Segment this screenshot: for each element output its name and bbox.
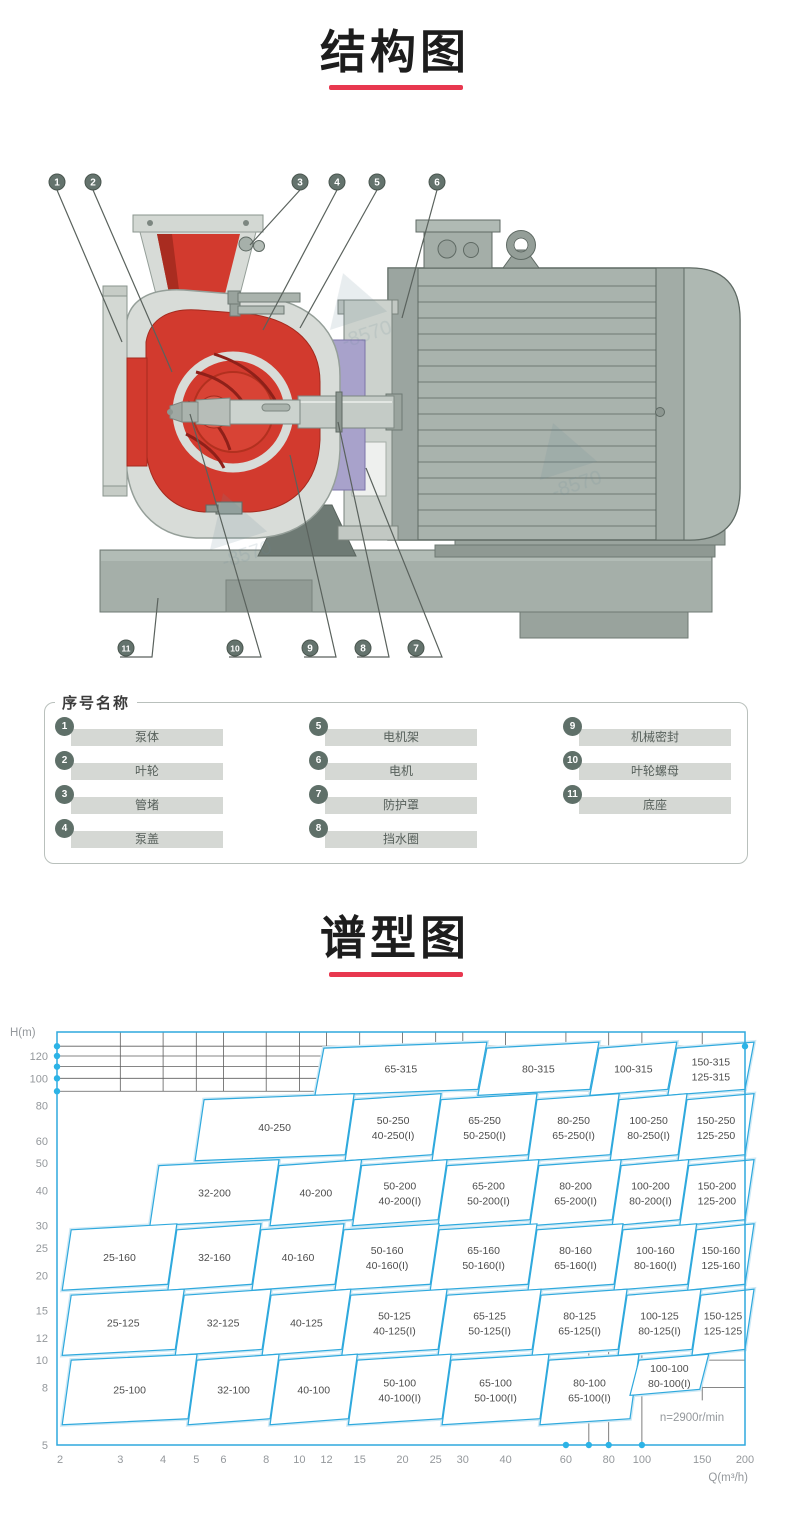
svg-text:12: 12	[320, 1454, 332, 1466]
svg-text:3: 3	[297, 178, 303, 189]
region-tile-100-125: 100-12580-125(I)	[618, 1289, 701, 1355]
svg-text:100-125: 100-125	[640, 1310, 679, 1322]
svg-text:15: 15	[354, 1454, 366, 1466]
svg-text:8: 8	[360, 644, 366, 655]
svg-text:5: 5	[193, 1454, 199, 1466]
region-tiles: 65-31580-315100-315150-315125-31540-2505…	[62, 1042, 754, 1425]
region-tile-50-100: 50-10040-100(I)	[348, 1354, 451, 1425]
callout-5: 5	[369, 174, 385, 190]
svg-text:50-250: 50-250	[377, 1115, 410, 1127]
region-tile-40-200: 40-200	[270, 1160, 362, 1226]
region-tile-80-315: 80-315	[478, 1042, 599, 1095]
svg-text:30: 30	[36, 1221, 48, 1233]
legend-item-label: 管堵	[71, 797, 223, 814]
svg-text:100: 100	[30, 1073, 48, 1085]
svg-text:50: 50	[36, 1158, 48, 1170]
svg-text:10: 10	[230, 644, 240, 654]
svg-text:120: 120	[30, 1051, 48, 1063]
region-tile-40-160: 40-160	[252, 1224, 344, 1290]
svg-text:80-100(I): 80-100(I)	[648, 1378, 691, 1390]
callout-2: 2	[85, 174, 101, 190]
region-tile-50-160: 50-16040-160(I)	[335, 1224, 439, 1290]
svg-text:60: 60	[36, 1136, 48, 1148]
svg-text:80-160: 80-160	[559, 1245, 592, 1257]
svg-text:3: 3	[117, 1454, 123, 1466]
svg-text:100-250: 100-250	[629, 1115, 668, 1127]
svg-text:32-200: 32-200	[198, 1188, 231, 1200]
svg-text:100: 100	[633, 1454, 651, 1466]
region-tile-50-200: 50-20040-200(I)	[353, 1160, 447, 1226]
legend-item-number: 8	[309, 819, 328, 838]
region-tile-25-125: 25-125	[62, 1289, 184, 1355]
svg-text:100-315: 100-315	[614, 1064, 653, 1076]
callout-3: 3	[292, 174, 308, 190]
region-tile-65-200: 65-20050-200(I)	[438, 1160, 539, 1226]
svg-text:65-160: 65-160	[467, 1245, 500, 1257]
svg-text:50-100(I): 50-100(I)	[474, 1392, 517, 1404]
legend-item-label: 叶轮螺母	[579, 763, 731, 780]
svg-text:150-200: 150-200	[698, 1181, 737, 1193]
svg-text:50-200: 50-200	[383, 1181, 416, 1193]
svg-text:40-125: 40-125	[290, 1317, 323, 1329]
region-tile-65-125: 65-12550-125(I)	[438, 1289, 541, 1355]
region-tile-32-100: 32-100	[188, 1354, 279, 1425]
svg-text:150: 150	[693, 1454, 711, 1466]
region-tile-80-160: 80-16065-160(I)	[528, 1224, 623, 1290]
region-tile-25-160: 25-160	[62, 1224, 177, 1290]
svg-text:65-250(I): 65-250(I)	[552, 1130, 595, 1142]
svg-text:40-100: 40-100	[297, 1384, 330, 1396]
svg-text:125-315: 125-315	[692, 1072, 731, 1084]
legend-item-number: 3	[55, 785, 74, 804]
svg-text:6: 6	[434, 178, 440, 189]
svg-text:40-160: 40-160	[282, 1252, 315, 1264]
legend-item-label: 机械密封	[579, 729, 731, 746]
region-tile-50-125: 50-12540-125(I)	[342, 1289, 447, 1355]
legend-item-label: 叶轮	[71, 763, 223, 780]
callout-7: 7	[408, 640, 424, 656]
legend-item-label: 底座	[579, 797, 731, 814]
svg-text:10: 10	[293, 1454, 305, 1466]
svg-text:40-250: 40-250	[258, 1122, 291, 1134]
region-tile-65-160: 65-16050-160(I)	[430, 1224, 537, 1290]
region-tile-100-160: 100-16080-160(I)	[614, 1224, 697, 1290]
svg-text:65-200: 65-200	[472, 1181, 505, 1193]
legend-item-number: 1	[55, 717, 74, 736]
callout-1: 1	[49, 174, 65, 190]
svg-text:65-250: 65-250	[468, 1115, 501, 1127]
svg-text:5: 5	[42, 1440, 48, 1452]
svg-text:65-100: 65-100	[479, 1377, 512, 1389]
spectrum-title: 谱型图	[0, 902, 790, 968]
region-tile-150-200: 150-200125-200	[680, 1160, 754, 1226]
region-tile-32-125: 32-125	[175, 1289, 271, 1355]
parts-legend: 序号名称 1泵体2叶轮3管堵4泵盖5电机架6电机7防护罩8挡水圈9机械密封10叶…	[44, 702, 748, 864]
speed-annotation: n=2900r/min	[660, 1412, 724, 1424]
legend-item-number: 5	[309, 717, 328, 736]
legend-item-number: 11	[563, 785, 582, 804]
legend-item-label: 电机架	[325, 729, 477, 746]
svg-text:100-160: 100-160	[636, 1245, 675, 1257]
svg-text:65-200(I): 65-200(I)	[554, 1196, 597, 1208]
region-tile-150-250: 150-250125-250	[678, 1094, 754, 1161]
svg-text:8: 8	[42, 1382, 48, 1394]
region-tile-100-100: 100-10080-100(I)	[630, 1354, 709, 1395]
svg-text:40-100(I): 40-100(I)	[378, 1392, 421, 1404]
svg-text:4: 4	[334, 178, 340, 189]
svg-text:125-200: 125-200	[698, 1196, 737, 1208]
region-tile-32-160: 32-160	[168, 1224, 261, 1290]
callout-8: 8	[355, 640, 371, 656]
svg-text:80-125(I): 80-125(I)	[638, 1325, 681, 1337]
spectrum-title-underline	[329, 972, 463, 977]
legend-item-number: 7	[309, 785, 328, 804]
svg-text:80-200: 80-200	[559, 1181, 592, 1193]
svg-text:65-125: 65-125	[473, 1310, 506, 1322]
svg-text:50-125: 50-125	[378, 1310, 411, 1322]
svg-text:65-315: 65-315	[385, 1064, 418, 1076]
svg-text:125-160: 125-160	[702, 1260, 741, 1272]
svg-text:6: 6	[220, 1454, 226, 1466]
svg-text:80-125: 80-125	[563, 1310, 596, 1322]
svg-text:50-100: 50-100	[383, 1377, 416, 1389]
svg-text:20: 20	[396, 1454, 408, 1466]
svg-text:150-125: 150-125	[704, 1310, 743, 1322]
svg-text:25-160: 25-160	[103, 1252, 136, 1264]
svg-text:1: 1	[54, 178, 60, 189]
svg-text:40-200: 40-200	[299, 1188, 332, 1200]
svg-text:40: 40	[499, 1454, 511, 1466]
svg-text:50-125(I): 50-125(I)	[468, 1325, 511, 1337]
structure-title-underline	[329, 85, 463, 90]
svg-text:80-100: 80-100	[573, 1377, 606, 1389]
svg-text:40-125(I): 40-125(I)	[373, 1325, 416, 1337]
legend-title: 序号名称	[55, 692, 137, 713]
svg-text:80: 80	[603, 1454, 615, 1466]
region-tile-100-315: 100-315	[590, 1042, 677, 1095]
legend-item-label: 电机	[325, 763, 477, 780]
svg-text:125-250: 125-250	[697, 1130, 736, 1142]
svg-text:7: 7	[413, 644, 419, 655]
legend-item-number: 10	[563, 751, 582, 770]
svg-text:25: 25	[36, 1243, 48, 1255]
svg-text:65-125(I): 65-125(I)	[558, 1325, 601, 1337]
svg-text:32-160: 32-160	[198, 1252, 231, 1264]
callout-11: 11	[118, 640, 134, 656]
svg-text:80-250(I): 80-250(I)	[627, 1130, 670, 1142]
svg-text:40-250(I): 40-250(I)	[372, 1130, 415, 1142]
svg-text:50-160: 50-160	[371, 1245, 404, 1257]
region-tile-80-100: 80-10065-100(I)	[540, 1354, 639, 1425]
legend-item-number: 9	[563, 717, 582, 736]
svg-text:2: 2	[57, 1454, 63, 1466]
legend-item-label: 挡水圈	[325, 831, 477, 848]
callout-4: 4	[329, 174, 345, 190]
pump-casing	[103, 215, 340, 538]
svg-text:200: 200	[736, 1454, 754, 1466]
base-assembly	[100, 550, 712, 638]
pump-structure-diagram: -8570-8570-8570 1234561110987	[0, 150, 790, 675]
structure-title: 结构图	[0, 16, 790, 82]
svg-text:9: 9	[307, 644, 313, 655]
svg-text:125-125: 125-125	[704, 1325, 743, 1337]
svg-text:80-250: 80-250	[557, 1115, 590, 1127]
svg-text:8: 8	[263, 1454, 269, 1466]
svg-text:20: 20	[36, 1270, 48, 1282]
svg-text:80-315: 80-315	[522, 1064, 555, 1076]
svg-text:5: 5	[374, 178, 380, 189]
svg-text:80-200(I): 80-200(I)	[629, 1196, 672, 1208]
svg-text:50-200(I): 50-200(I)	[467, 1196, 510, 1208]
legend-item-number: 4	[55, 819, 74, 838]
svg-text:15: 15	[36, 1306, 48, 1318]
svg-text:50-160(I): 50-160(I)	[462, 1260, 505, 1272]
callout-6: 6	[429, 174, 445, 190]
region-tile-80-200: 80-20065-200(I)	[530, 1160, 621, 1226]
region-tile-65-100: 65-10050-100(I)	[442, 1354, 549, 1425]
region-tile-100-250: 100-25080-250(I)	[610, 1094, 687, 1161]
junction-box	[424, 228, 492, 268]
legend-item-number: 6	[309, 751, 328, 770]
region-tile-25-100: 25-100	[62, 1354, 197, 1425]
svg-text:12: 12	[36, 1333, 48, 1345]
svg-text:H(m): H(m)	[10, 1027, 36, 1039]
svg-text:10: 10	[36, 1355, 48, 1367]
region-tile-65-250: 65-25050-250(I)	[432, 1094, 537, 1161]
region-tile-40-250: 40-250	[195, 1094, 354, 1161]
callout-9: 9	[302, 640, 318, 656]
region-tile-100-200: 100-20080-200(I)	[612, 1160, 689, 1226]
svg-text:40-200(I): 40-200(I)	[379, 1196, 422, 1208]
svg-text:65-160(I): 65-160(I)	[554, 1260, 597, 1272]
svg-text:32-125: 32-125	[207, 1317, 240, 1329]
svg-text:30: 30	[457, 1454, 469, 1466]
svg-text:100-100: 100-100	[650, 1363, 689, 1375]
region-tile-80-250: 80-25065-250(I)	[528, 1094, 619, 1161]
svg-text:150-250: 150-250	[697, 1115, 736, 1127]
region-tile-65-315: 65-315	[315, 1042, 487, 1095]
svg-text:100-200: 100-200	[631, 1181, 670, 1193]
region-tile-150-160: 150-160125-160	[688, 1224, 754, 1290]
svg-text:150-160: 150-160	[702, 1245, 741, 1257]
svg-text:150-315: 150-315	[692, 1057, 731, 1069]
legend-item-number: 2	[55, 751, 74, 770]
svg-text:11: 11	[122, 644, 131, 654]
svg-text:40: 40	[36, 1185, 48, 1197]
region-tile-40-125: 40-125	[262, 1289, 351, 1355]
svg-text:65-100(I): 65-100(I)	[568, 1392, 611, 1404]
svg-text:80: 80	[36, 1101, 48, 1113]
legend-item-label: 防护罩	[325, 797, 477, 814]
svg-text:50-250(I): 50-250(I)	[463, 1130, 506, 1142]
impeller-nut	[182, 402, 198, 422]
svg-text:25: 25	[430, 1454, 442, 1466]
product-page: 结构图	[0, 0, 790, 1520]
region-tile-40-100: 40-100	[270, 1354, 357, 1425]
svg-text:25-100: 25-100	[113, 1384, 146, 1396]
svg-text:25-125: 25-125	[107, 1317, 140, 1329]
region-tile-150-315: 150-315125-315	[668, 1042, 754, 1095]
legend-item-label: 泵盖	[71, 831, 223, 848]
region-tile-80-125: 80-12565-125(I)	[532, 1289, 627, 1355]
legend-item-label: 泵体	[71, 729, 223, 746]
svg-text:40-160(I): 40-160(I)	[366, 1260, 409, 1272]
svg-text:60: 60	[560, 1454, 572, 1466]
svg-text:32-100: 32-100	[217, 1384, 250, 1396]
svg-text:Q(m³/h): Q(m³/h)	[708, 1472, 748, 1484]
callout-10: 10	[227, 640, 243, 656]
svg-text:2: 2	[90, 178, 96, 189]
svg-text:80-160(I): 80-160(I)	[634, 1260, 677, 1272]
pump-selection-chart: 65-31580-315100-315150-315125-31540-2505…	[0, 1005, 790, 1520]
region-tile-50-250: 50-25040-250(I)	[345, 1094, 441, 1161]
svg-text:4: 4	[160, 1454, 166, 1466]
region-tile-32-200: 32-200	[150, 1160, 279, 1226]
